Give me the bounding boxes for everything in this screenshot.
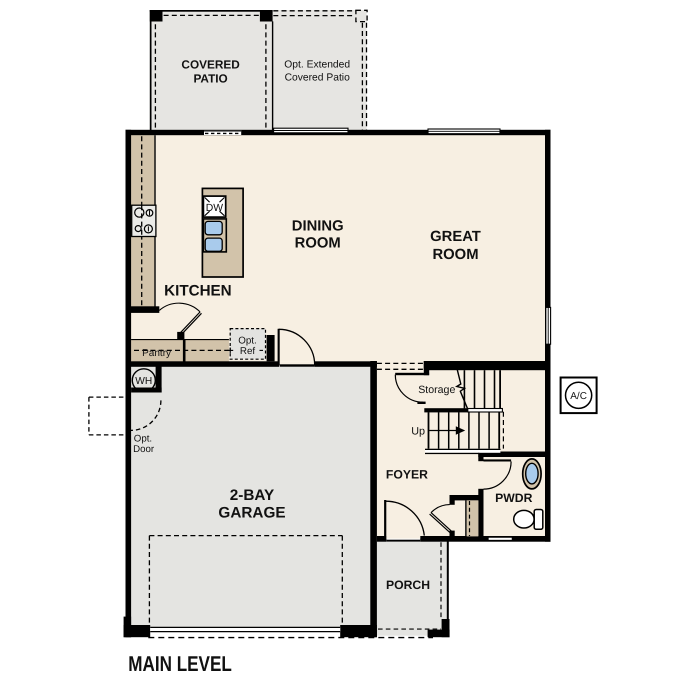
svg-text:2-BAY: 2-BAY [230, 487, 275, 504]
svg-text:PORCH: PORCH [386, 578, 430, 592]
svg-text:DW: DW [206, 203, 224, 214]
svg-text:ROOM: ROOM [295, 236, 341, 252]
svg-text:PATIO: PATIO [193, 71, 227, 85]
svg-text:MAIN LEVEL: MAIN LEVEL [128, 652, 232, 676]
svg-text:WH: WH [135, 376, 152, 387]
svg-text:Covered Patio: Covered Patio [285, 73, 351, 84]
svg-text:Ref: Ref [240, 346, 256, 357]
svg-text:Pantry: Pantry [142, 348, 171, 359]
svg-text:Opt.: Opt. [134, 433, 152, 444]
svg-text:Up: Up [411, 425, 425, 437]
svg-text:Opt. Extended: Opt. Extended [284, 60, 350, 71]
svg-text:GARAGE: GARAGE [218, 505, 285, 522]
svg-text:Door: Door [133, 444, 155, 455]
svg-text:FOYER: FOYER [386, 468, 428, 482]
svg-text:DINING: DINING [292, 218, 344, 234]
svg-text:ROOM: ROOM [432, 247, 478, 263]
svg-text:KITCHEN: KITCHEN [164, 283, 232, 300]
svg-text:PWDR: PWDR [495, 491, 532, 505]
svg-text:COVERED: COVERED [181, 58, 240, 72]
svg-text:A/C: A/C [570, 391, 587, 402]
svg-text:GREAT: GREAT [430, 229, 481, 245]
svg-text:Storage: Storage [418, 384, 455, 396]
